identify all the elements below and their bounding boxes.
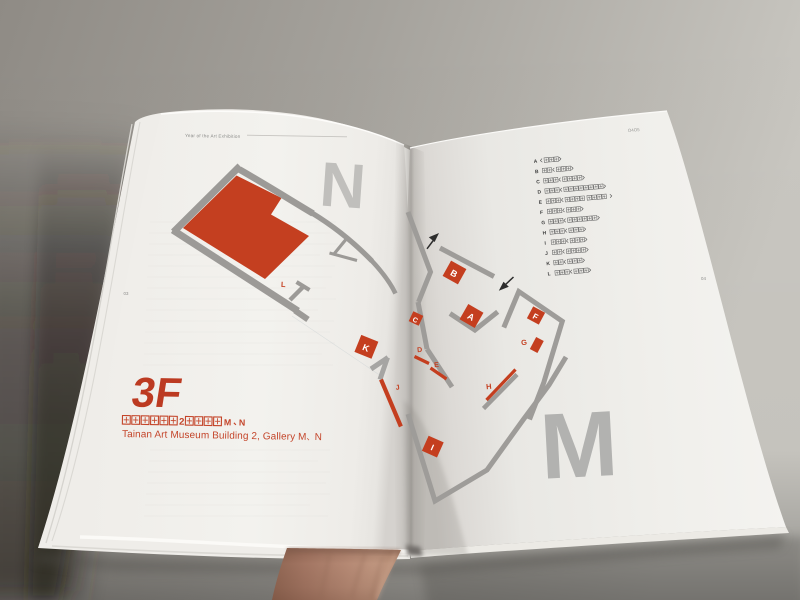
svg-text:M: M (537, 391, 620, 499)
svg-text:N: N (318, 150, 368, 223)
svg-text:G: G (541, 220, 545, 226)
svg-text:2: 2 (179, 417, 185, 428)
svg-text:N: N (239, 418, 246, 428)
svg-text:04: 04 (701, 276, 706, 281)
svg-text:F: F (540, 210, 543, 216)
svg-text:Year of the Art Exhibition: Year of the Art Exhibition (185, 133, 241, 139)
svg-text:D: D (417, 347, 423, 354)
svg-text:M: M (224, 417, 231, 427)
svg-text:03: 03 (124, 291, 129, 296)
svg-text:3F: 3F (129, 369, 185, 417)
svg-text:O4O5: O4O5 (628, 127, 641, 133)
svg-text:L: L (281, 280, 286, 289)
svg-text:G: G (521, 338, 528, 348)
svg-text:H: H (486, 382, 492, 392)
svg-text:L: L (547, 271, 550, 277)
